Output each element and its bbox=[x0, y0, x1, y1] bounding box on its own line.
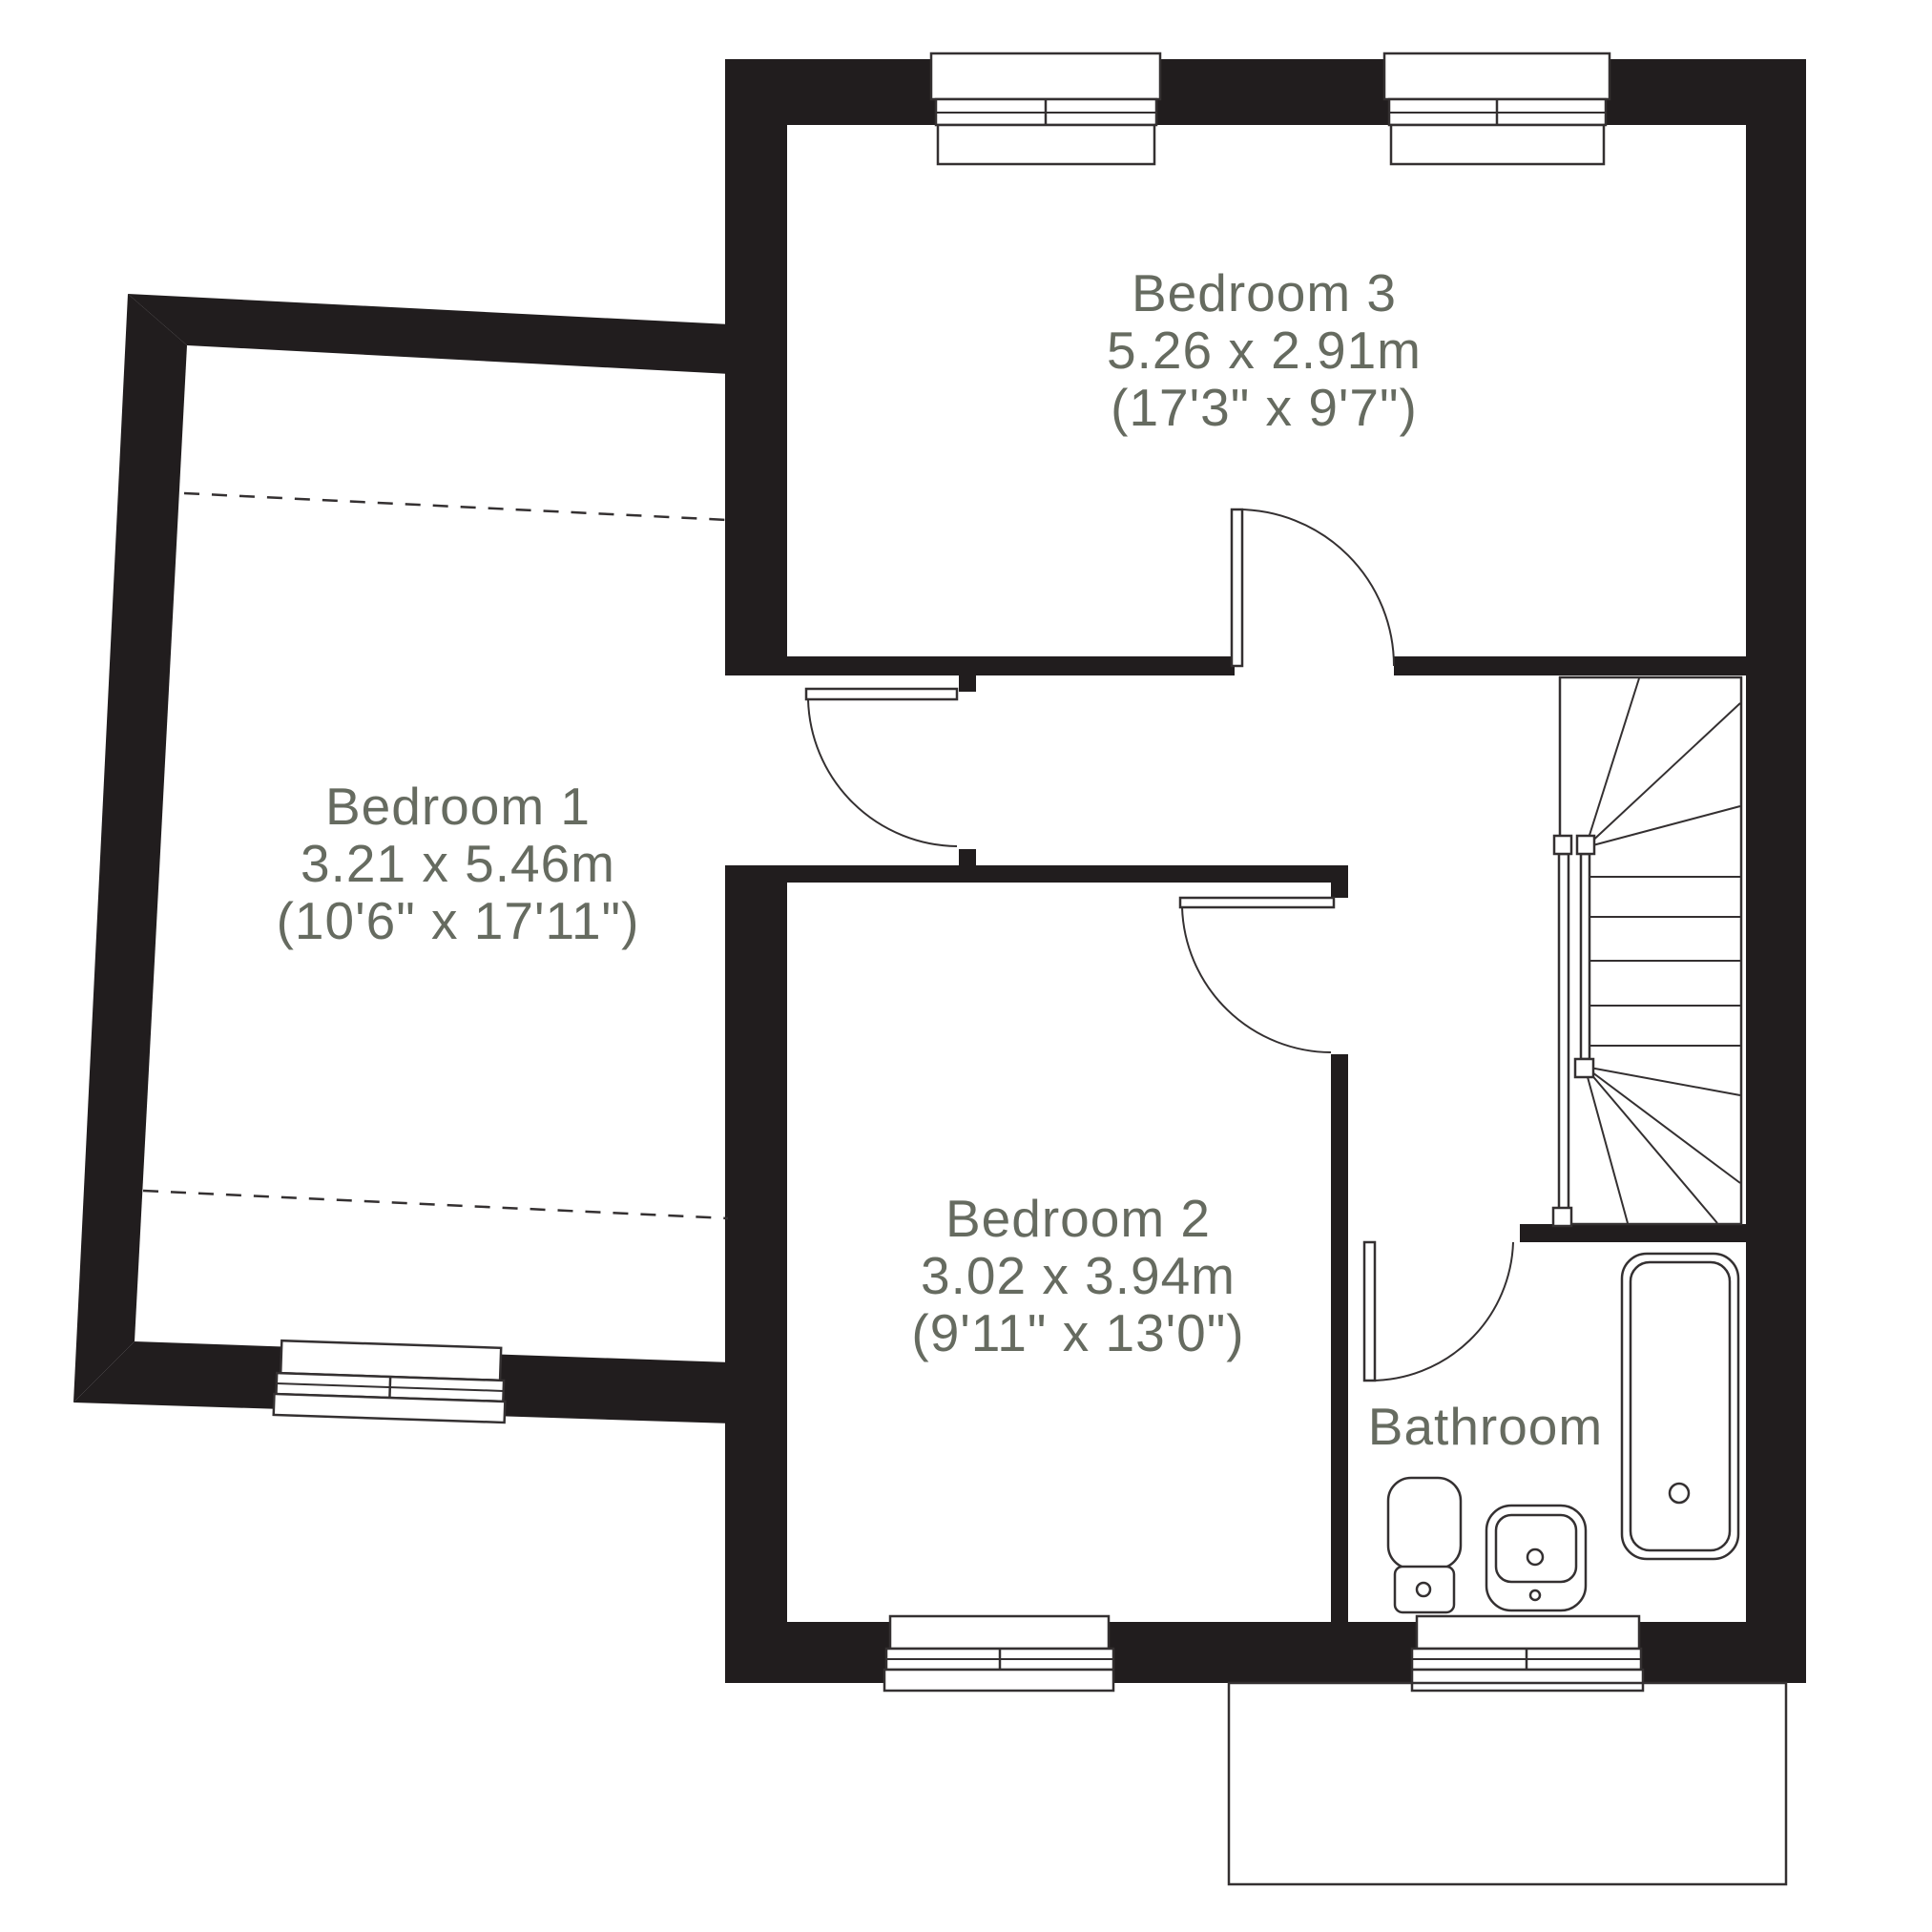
bedroom1-dimensions-metric: 3.21 x 5.46m bbox=[301, 834, 615, 893]
window-bedroom2-bottom bbox=[884, 1616, 1113, 1691]
wall-bedroom2-bathroom-divider bbox=[1331, 1054, 1348, 1622]
wall-top bbox=[725, 59, 1806, 125]
window-bedroom3-left bbox=[931, 53, 1160, 164]
stair-newel bbox=[1553, 1208, 1571, 1226]
window-bedroom1-bottom bbox=[274, 1340, 507, 1423]
door-stub-bedroom1-bottom bbox=[959, 849, 976, 865]
stair-newel bbox=[1554, 836, 1571, 854]
stair-handrail-left bbox=[1559, 854, 1568, 1210]
door-leaf bbox=[1364, 1242, 1375, 1381]
wall-bedroom1-top-slanted bbox=[128, 294, 730, 374]
door-bedroom1 bbox=[806, 689, 957, 846]
bathroom-label: Bathroom bbox=[1368, 1397, 1603, 1456]
wall-bedroom3-bottom-left bbox=[725, 656, 1235, 675]
dashed-line-lower bbox=[143, 1191, 728, 1218]
toilet bbox=[1388, 1478, 1461, 1612]
bedroom2-dimensions-imperial: (9'11" x 13'0") bbox=[911, 1303, 1244, 1362]
floor-plan: Bedroom 1 3.21 x 5.46m (10'6" x 17'11") … bbox=[0, 0, 1932, 1932]
wall-center-lower bbox=[725, 883, 787, 1622]
door-leaf bbox=[806, 689, 957, 699]
bedroom1-label: Bedroom 1 bbox=[325, 777, 591, 836]
door-bedroom2 bbox=[1180, 898, 1334, 1052]
window-bedroom3-right bbox=[1384, 53, 1610, 164]
stair-handrail-right bbox=[1581, 854, 1589, 1059]
staircase bbox=[1553, 677, 1741, 1226]
room-labels: Bedroom 1 3.21 x 5.46m (10'6" x 17'11") … bbox=[277, 263, 1604, 1456]
door-stub-bedroom1-top bbox=[959, 675, 976, 692]
bedroom2-dimensions-metric: 3.02 x 3.94m bbox=[921, 1246, 1236, 1305]
basin bbox=[1486, 1506, 1586, 1610]
wall-center-upper bbox=[725, 59, 787, 675]
bedroom3-label: Bedroom 3 bbox=[1132, 263, 1397, 322]
door-bedroom3 bbox=[1232, 509, 1394, 666]
stair-newel bbox=[1575, 1059, 1593, 1077]
wall-bedroom1-left-slanted bbox=[73, 294, 187, 1402]
wall-right bbox=[1746, 59, 1806, 1683]
door-leaf bbox=[1232, 509, 1242, 666]
wall-bedroom3-bottom-right bbox=[1394, 656, 1746, 675]
bedroom3-dimensions-metric: 5.26 x 2.91m bbox=[1107, 321, 1422, 380]
wall-bedroom2-top bbox=[725, 865, 1348, 883]
stair-newel bbox=[1577, 836, 1594, 854]
bedroom1-dimensions-imperial: (10'6" x 17'11") bbox=[277, 891, 640, 950]
door-leaf bbox=[1180, 898, 1334, 907]
dashed-line-upper bbox=[184, 493, 728, 520]
page: { "title": "First floor plan", "palette"… bbox=[0, 0, 1932, 1932]
bedroom2-label: Bedroom 2 bbox=[945, 1189, 1211, 1248]
wall-bedroom2-corner-stub bbox=[1331, 883, 1348, 898]
door-bathroom bbox=[1364, 1242, 1513, 1381]
bathtub bbox=[1622, 1254, 1738, 1559]
window-bathroom-bottom bbox=[1412, 1616, 1643, 1691]
porch-outline bbox=[1229, 1683, 1786, 1884]
bedroom3-dimensions-imperial: (17'3" x 9'7") bbox=[1111, 378, 1418, 437]
